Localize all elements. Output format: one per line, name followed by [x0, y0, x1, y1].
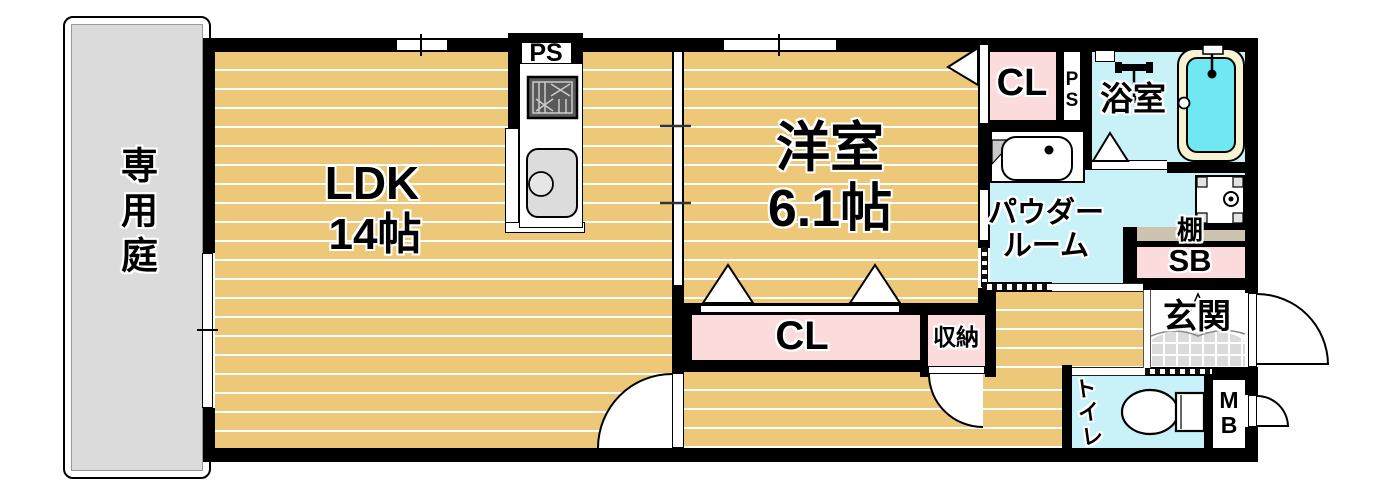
window-western-top	[723, 39, 837, 51]
washbasin-unit	[990, 130, 1085, 183]
wall-bottom	[203, 448, 1258, 462]
powder-opening-vertical	[981, 247, 988, 287]
floorplan: 専用庭 LDK 14帖 洋室 6.1帖 PS CL PS 浴室 パウダー ルーム…	[0, 0, 1393, 496]
western-room-size-label: 6.1帖	[768, 182, 892, 236]
closet-lower-label: CL	[775, 316, 828, 358]
bath-shelf-box	[1095, 50, 1115, 62]
toilet-opening-dashed	[1145, 367, 1212, 376]
entrance-door-swing	[1257, 293, 1329, 365]
wall-right-upper	[1245, 38, 1258, 293]
powder-west-wall	[978, 123, 990, 190]
sliding-partition	[672, 52, 684, 285]
kitchen-sink	[526, 148, 578, 218]
folding-door-track	[700, 305, 900, 313]
bath-ps-label: PS	[1063, 70, 1081, 112]
bathtub-inner	[1186, 57, 1236, 153]
shelf-label: 棚	[1177, 217, 1203, 244]
closet-upper-label: CL	[997, 64, 1048, 104]
western-se-post	[978, 288, 996, 315]
powder-opening-horizontal	[982, 282, 1052, 292]
ldk-floor	[215, 52, 672, 448]
western-room-label: 洋室	[776, 120, 884, 176]
sb-bottom-wall	[1137, 278, 1245, 290]
bath-threshold	[1092, 160, 1167, 170]
closet-upper-bottom-wall	[978, 120, 1092, 130]
storage-door-leaf	[928, 366, 985, 374]
meter-box-label: MB	[1217, 388, 1241, 439]
bathroom-label: 浴室	[1100, 82, 1166, 116]
meterbox-door-leaf	[1248, 395, 1257, 427]
western-door-pocket	[978, 45, 990, 123]
window-ldk-top	[396, 39, 448, 51]
window-ldk-left	[202, 253, 213, 408]
meterbox-door-swing	[1257, 395, 1289, 427]
storage-label: 収納	[933, 326, 979, 350]
hallway-lower-floor	[684, 372, 1062, 448]
garden-label: 専用庭	[116, 146, 154, 281]
closet-storage-wall	[920, 303, 928, 377]
partition-stub-wall	[672, 285, 684, 373]
toilet-door	[1072, 367, 1145, 376]
entrance-toilet-wall	[1212, 367, 1245, 375]
meterbox-west-wall	[1204, 373, 1213, 452]
ldk-size-label: 14帖	[329, 212, 422, 258]
shoe-box-label: SB	[1168, 245, 1211, 277]
wall-right-mid	[1245, 367, 1258, 395]
bath-bottom-wall	[1167, 162, 1245, 173]
wall-left-lower	[203, 408, 215, 462]
powder-room-label-line1: パウダー	[988, 198, 1104, 228]
ldk-door-leaf	[672, 373, 684, 448]
entrance-label: 玄関	[1163, 300, 1231, 335]
wall-right-lower	[1245, 427, 1258, 462]
hallway-upper-floor	[985, 292, 1143, 372]
kitchen-ps-label: PS	[529, 40, 562, 66]
ldk-label: LDK	[325, 160, 420, 208]
powder-hall-edge	[1052, 283, 1143, 292]
entrance-door-leaf	[1248, 293, 1257, 367]
closet-bottom-wall	[684, 360, 928, 372]
kitchen-end-panel	[505, 128, 519, 233]
wall-left-upper	[203, 38, 215, 253]
powder-room-label-line2: ルーム	[1003, 231, 1089, 261]
entrance-step-edge	[1143, 290, 1151, 368]
